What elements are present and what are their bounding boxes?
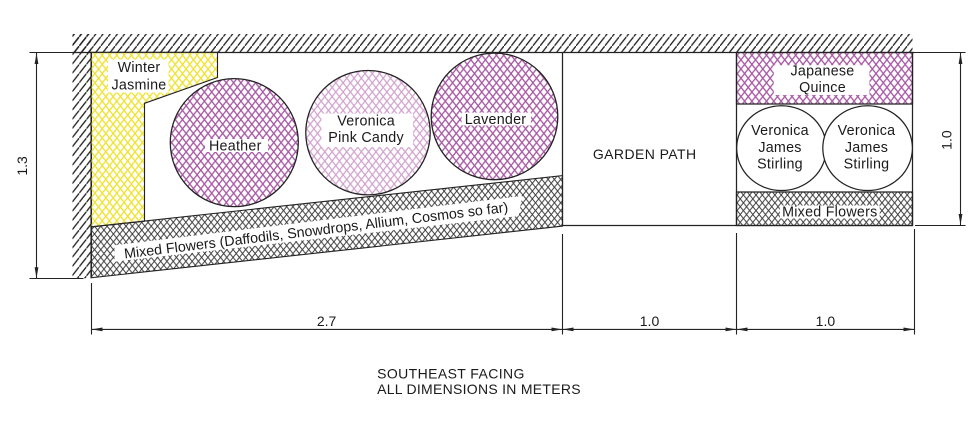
svg-text:Stirling: Stirling	[844, 157, 890, 173]
svg-text:James: James	[845, 140, 888, 156]
svg-text:GARDEN PATH: GARDEN PATH	[593, 146, 697, 162]
svg-text:SOUTHEAST FACING: SOUTHEAST FACING	[377, 365, 525, 381]
svg-text:Jasmine: Jasmine	[112, 78, 167, 94]
svg-text:Veronica: Veronica	[838, 123, 896, 139]
svg-text:Lavender: Lavender	[465, 112, 527, 128]
svg-text:1.3: 1.3	[14, 156, 30, 176]
svg-text:Japanese: Japanese	[790, 63, 854, 79]
svg-text:ALL DIMENSIONS IN METERS: ALL DIMENSIONS IN METERS	[377, 381, 581, 397]
svg-text:Winter: Winter	[118, 60, 161, 76]
svg-text:Heather: Heather	[209, 139, 262, 155]
svg-text:2.7: 2.7	[317, 313, 337, 329]
svg-text:Veronica: Veronica	[751, 123, 809, 139]
svg-text:Veronica: Veronica	[337, 114, 395, 130]
svg-text:1.0: 1.0	[938, 130, 954, 150]
svg-text:Mixed Flowers: Mixed Flowers	[782, 205, 877, 221]
svg-text:Pink Candy: Pink Candy	[328, 130, 404, 146]
svg-text:1.0: 1.0	[816, 313, 836, 329]
svg-text:1.0: 1.0	[640, 313, 660, 329]
svg-text:James: James	[758, 140, 801, 156]
svg-text:Quince: Quince	[799, 80, 846, 96]
svg-text:Stirling: Stirling	[757, 157, 803, 173]
